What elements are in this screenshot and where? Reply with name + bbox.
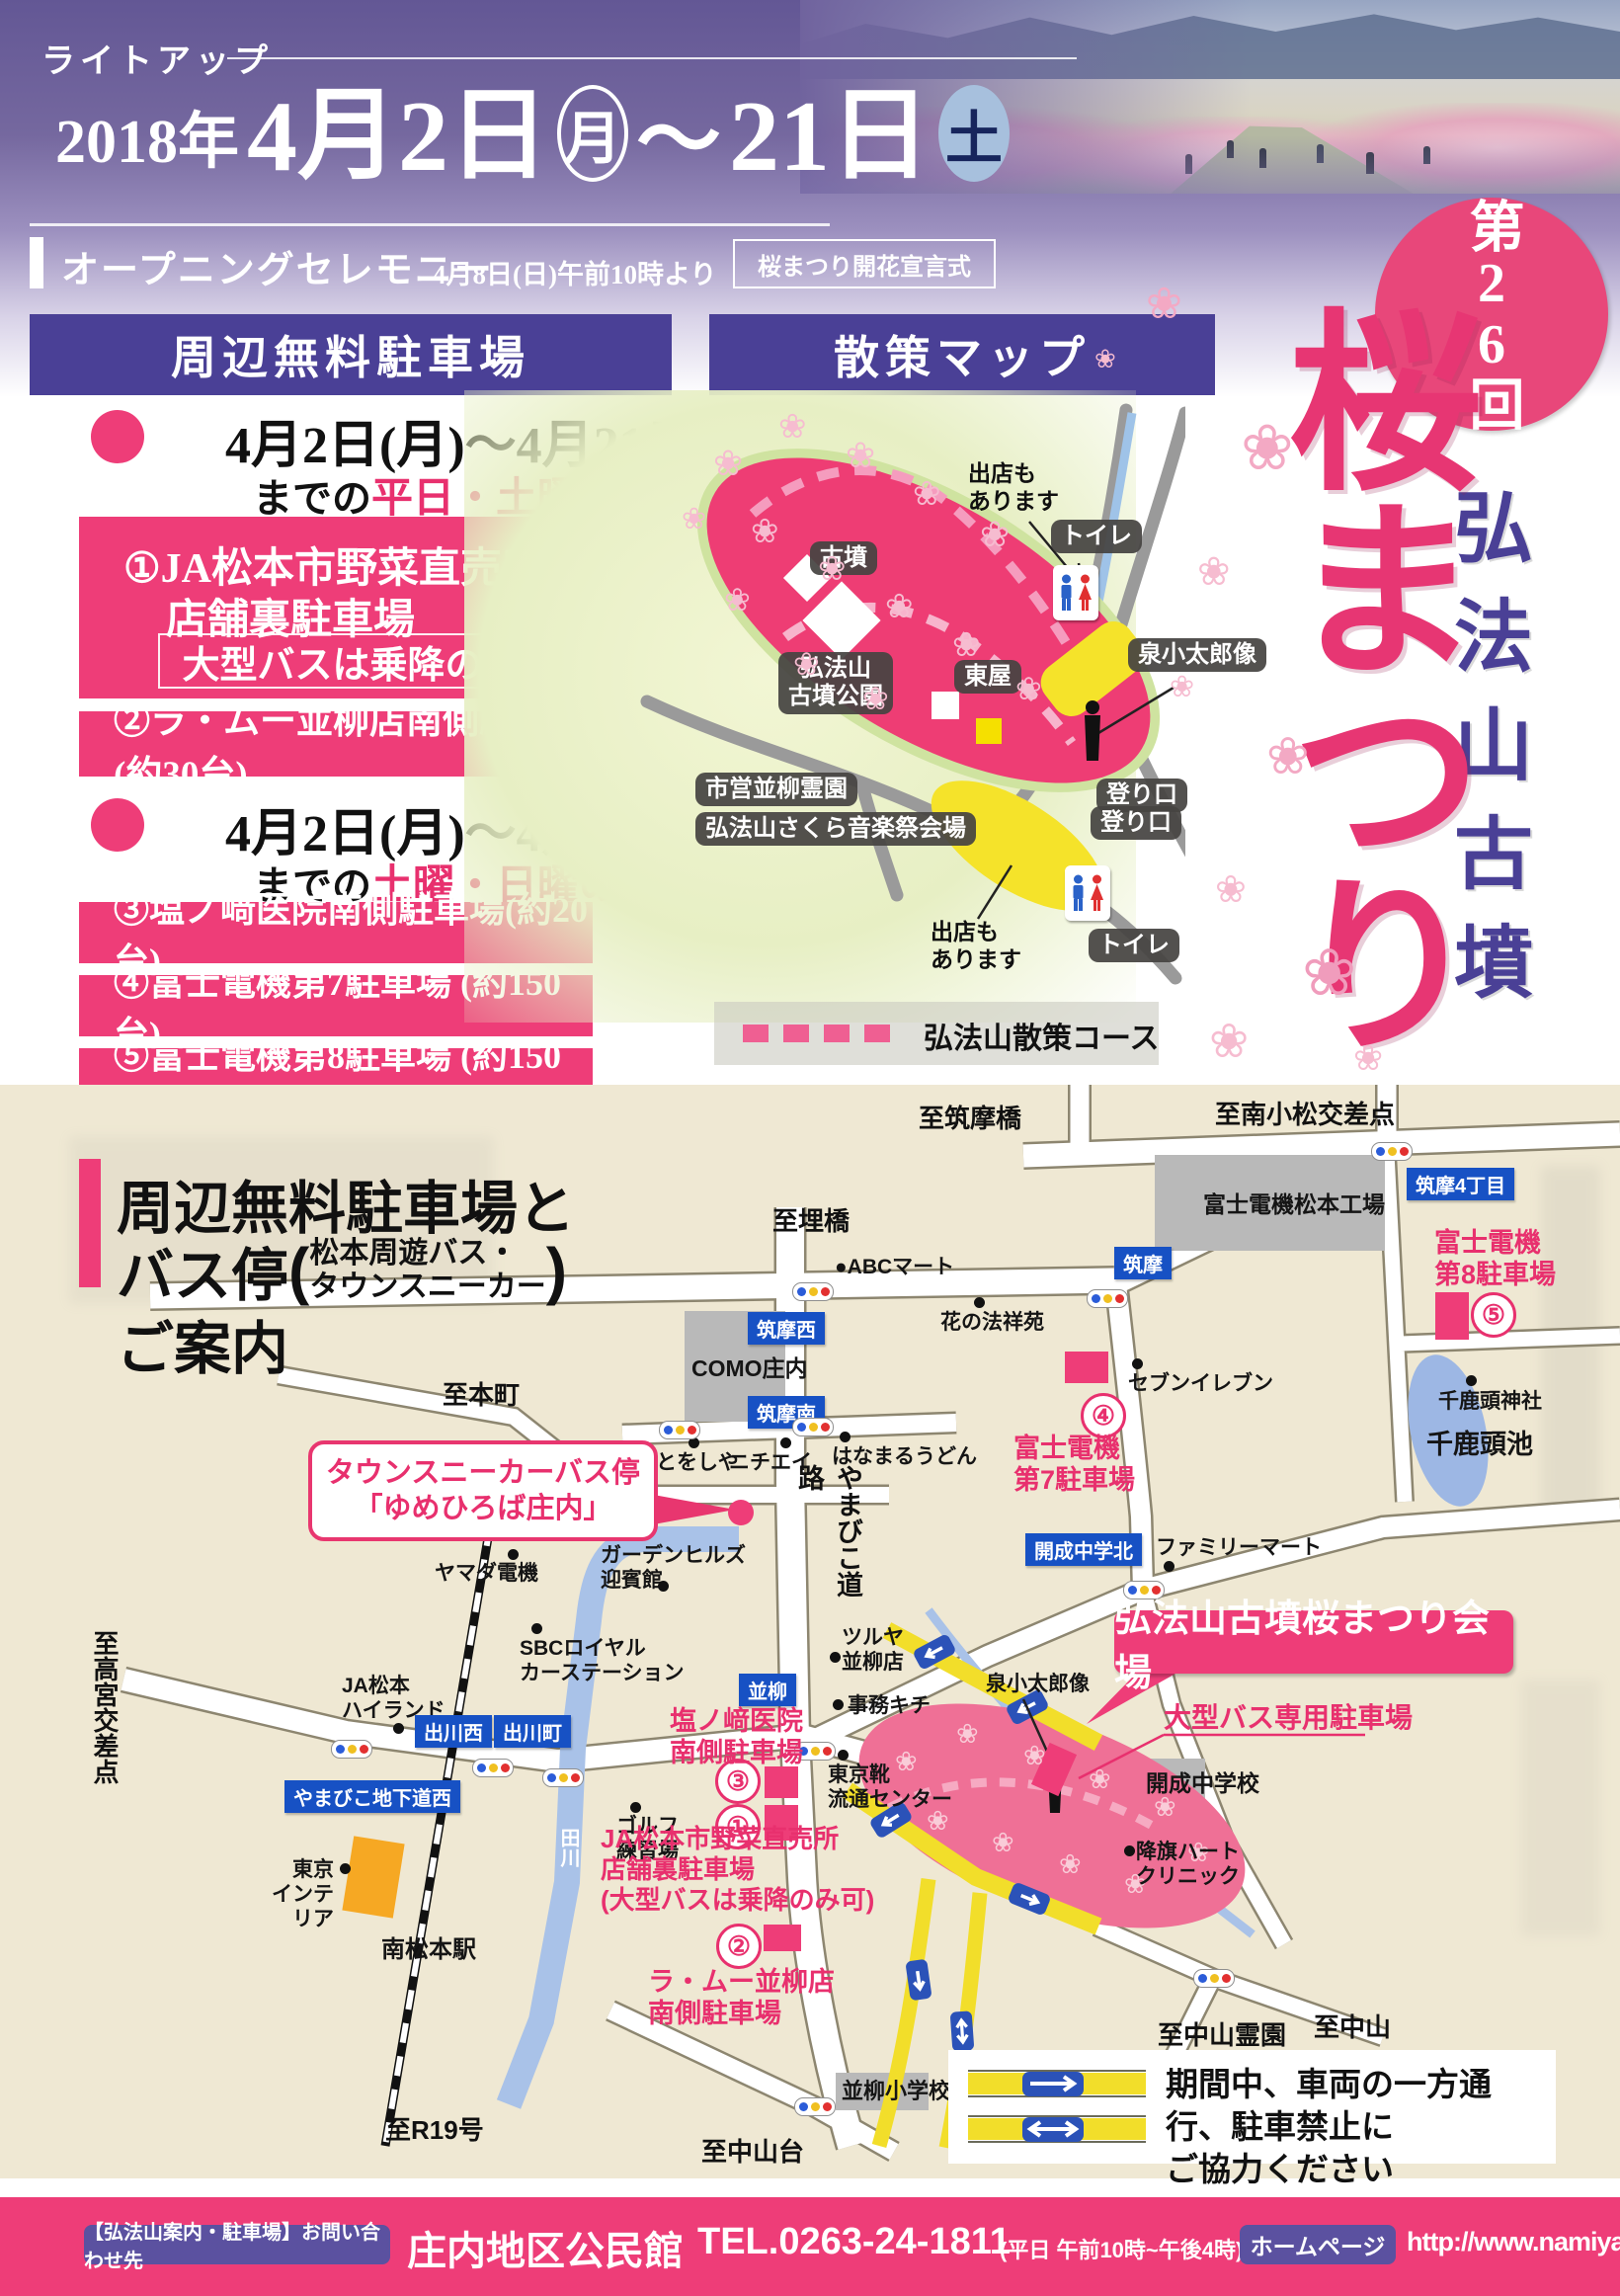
blossom-icon: ❀ [793, 645, 820, 683]
poi-dot [780, 1437, 791, 1448]
traffic-signal [792, 1282, 834, 1301]
dest-r19: 至R19号 [385, 2110, 484, 2147]
poi-tsuruya: ツルヤ 並柳店 [842, 1625, 904, 1675]
callout-line-2: 「ゆめひろば庄内」 [354, 1491, 611, 1526]
blossom-icon: ❀ [1170, 670, 1194, 704]
man-icon [1059, 574, 1074, 612]
sign-namiyanagi: 並柳 [739, 1674, 796, 1706]
decor-line [227, 57, 1077, 59]
flyer: ライトアップ 2018年 4月2日 月 〜 21日 土 オープニングセレモニー … [0, 0, 1620, 2296]
blossom-icon: ❀ [992, 1828, 1014, 1858]
traffic-signal [1371, 1142, 1413, 1161]
blossom-icon: ❀ [778, 407, 807, 447]
blossom-icon: ❀ [1209, 1014, 1249, 1069]
poi-fuji-electric-plant: 富士電機松本工場 [1203, 1191, 1385, 1219]
poi-dot [531, 1623, 542, 1634]
blossom-icon: ❀ [1266, 727, 1310, 786]
footer-hours: (平日 午前10時~午後4時) [1000, 2233, 1243, 2264]
poi-dot [508, 1549, 519, 1560]
blossom-icon: ❀ [1146, 279, 1182, 329]
prefix: までの [253, 466, 371, 524]
dest-nakayama: 至中山 [1314, 2008, 1391, 2044]
heading-accent-bar [79, 1159, 101, 1287]
poi-hananohoshoen: 花の法祥苑 [940, 1310, 1044, 1335]
date-from: 4月2日 [247, 87, 549, 188]
footer-org: 庄内地区公民館 [407, 2219, 684, 2276]
parking-num-2: ② [716, 1924, 762, 1969]
blossom-icon: ❀ [1215, 867, 1247, 912]
woman-icon [1089, 874, 1105, 912]
blossom-icon: ❀ [713, 443, 743, 484]
sign-chikuma: 筑摩 [1114, 1247, 1172, 1279]
poi-garden-hills: ガーデンヒルズ 迎賓館 [601, 1543, 746, 1593]
walkmap-label-azumaya: 東屋 [954, 660, 1021, 694]
event-dates: 2018年 4月2日 月 〜 21日 土 [55, 85, 1010, 188]
blossom-icon: ❀ [724, 581, 751, 618]
section-bar-parking: 周辺無料駐車場 [30, 314, 672, 395]
poi-izumi-kotaro-statue: 泉小太郎像 [986, 1672, 1090, 1696]
dow-to-badge: 土 [938, 85, 1010, 182]
blossom-icon: ❀ [1023, 1741, 1046, 1771]
walkmap-label-trailhead-2: 登り口 [1091, 806, 1181, 840]
traffic-signal [794, 2097, 836, 2116]
parking-text-4: 富士電機 第7駐車場 [1013, 1433, 1135, 1497]
walkmap-note-stalls-1: 出店も あります [968, 460, 1059, 515]
parking-num-5: ⑤ [1471, 1292, 1516, 1338]
dest-takamiya: 至高宮交差点 [87, 1630, 123, 1887]
poi-dot [974, 1297, 985, 1308]
traffic-signal [659, 1421, 700, 1439]
oneway-legend-icons [968, 2068, 1146, 2147]
ceremony-box: 桜まつり開花宣言式 [733, 239, 996, 288]
blossom-icon: ❀ [1353, 1037, 1383, 1079]
sign-degawa-nishi: 出川西 [415, 1715, 492, 1748]
poi-jimukichi: 事務キチ [848, 1693, 931, 1718]
poi-dot [830, 1652, 841, 1663]
poi-dot [340, 1863, 351, 1874]
poi-chikatou-shrine: 千鹿頭神社 [1438, 1389, 1542, 1414]
sign-kaisei-kita: 開成中学北 [1025, 1533, 1142, 1566]
ceremony-label: オープニングセレモニー [61, 239, 494, 293]
poi-seven-eleven: セブンイレブン [1128, 1371, 1273, 1396]
heading-paren-2: タウンスニーカー [309, 1271, 545, 1305]
parking-text-3: 塩ノ﨑医院 南側駐車場 [670, 1705, 803, 1769]
poi-namiyanagi-elementary: 並柳小学校 [842, 2079, 950, 2104]
blossom-icon: ❀ [980, 514, 1010, 555]
roadmap-heading-2: バス停 ( 松本周遊バス・ タウンスニーカー ) [117, 1229, 567, 1312]
poi-dot [630, 1802, 641, 1813]
walkmap-graphic [435, 385, 1185, 1077]
parking-text-1: JA松本市野菜直売所 店舗裏駐車場 (大型バスは乗降のみ可) [601, 1824, 874, 1917]
dow-from-badge: 月 [557, 85, 628, 182]
blossom-icon: ❀ [1197, 549, 1231, 595]
walkmap-label-cemetery: 市営並柳霊園 [695, 773, 857, 806]
blossom-icon: ❀ [885, 587, 914, 626]
bullet-dot [91, 410, 144, 463]
poi-como-shonai: COMO庄内 [691, 1355, 808, 1383]
blossom-icon: ❀ [952, 625, 981, 665]
dest-minamikomatsu: 至南小松交差点 [1215, 1095, 1395, 1131]
woman-icon [1077, 574, 1093, 612]
walkmap-legend-label: 弘法山散策コース [924, 1014, 1160, 1057]
dest-honmachi: 至本町 [443, 1375, 520, 1412]
parking-text-2: ラ・ムー並柳店 南側駐車場 [648, 1966, 835, 2030]
poi-dot [838, 1750, 849, 1761]
parking-rect-3 [765, 1766, 798, 1798]
toilet-icon-1 [1053, 565, 1098, 620]
sign-chikuma-4: 筑摩4丁目 [1407, 1168, 1514, 1200]
poi-kaisei-junior-high: 開成中学校 [1146, 1770, 1259, 1798]
poi-dot [1132, 1358, 1143, 1369]
footer-tel: TEL.0263-24-1811 [697, 2221, 1011, 2263]
ceremony-bar [30, 237, 43, 288]
blossom-icon: ❀ [913, 474, 941, 514]
callout-line-1: タウンスニーカーバス停 [326, 1455, 640, 1491]
poi-dot [840, 1432, 850, 1442]
footer-contact-label: 【弘法山案内・駐車場】お問い合わせ先 [84, 2225, 390, 2264]
railway [385, 1526, 490, 2146]
bullet-dot [91, 798, 144, 852]
blossom-icon: ❀ [682, 502, 706, 536]
blossom-icon: ❀ [1241, 411, 1294, 485]
paren-open: ( [288, 1234, 309, 1307]
oneway-legend-box: 期間中、車両の一方通行、駐車禁止に ご協力ください [948, 2050, 1556, 2164]
blossom-icon: ❀ [846, 435, 875, 476]
date-to: 21日 [729, 87, 931, 188]
walkmap-label-music-fes: 弘法山さくら音楽祭会場 [695, 812, 976, 846]
poi-dot [393, 1723, 404, 1734]
blossom-icon: ❀ [956, 1719, 979, 1750]
poi-dot [658, 1581, 669, 1592]
parking-rect-2 [764, 1925, 801, 1951]
parking-text-5: 富士電機 第8駐車場 [1434, 1227, 1556, 1291]
traffic-signal [792, 1418, 834, 1436]
heading-bus-stop: バス停 [117, 1229, 288, 1312]
poi-dot [833, 1699, 844, 1710]
bus-stop-callout: タウンスニーカーバス停 「ゆめひろば庄内」 [308, 1440, 658, 1541]
blossom-icon: ❀ [751, 512, 779, 551]
poi-minami-matsumoto-sta: 南松本駅 [381, 1936, 476, 1965]
blossom-icon: ❀ [862, 680, 889, 717]
dest-nakayamadai: 至中山台 [701, 2132, 804, 2169]
tagawa-river-label: 田川 [554, 1828, 583, 1887]
sign-degawa-cho: 出川町 [494, 1715, 571, 1748]
bus-stop-dot [728, 1500, 754, 1525]
parking-rect-5 [1435, 1292, 1469, 1340]
year: 2018年 [55, 99, 239, 188]
poi-dot [1124, 1845, 1135, 1856]
poi-dot [1466, 1375, 1477, 1386]
venue-banner: 弘法山古墳桜まつり会場 [1114, 1610, 1513, 1674]
poi-sbc-royal: SBCロイヤル カーステーション [520, 1636, 685, 1685]
heading-paren-1: 松本周遊バス・ [309, 1237, 545, 1271]
poi-dot [1164, 1561, 1174, 1572]
traffic-signal [331, 1740, 372, 1759]
walkmap-note-stalls-2: 出店も あります [931, 919, 1021, 973]
sign-yamabiko-underpass: やまびこ地下道西 [284, 1780, 460, 1813]
blossom-icon: ❀ [1015, 670, 1042, 707]
blossom-icon: ❀ [1089, 1764, 1111, 1795]
dest-nakayama-reien: 至中山霊園 [1158, 2015, 1286, 2052]
roadmap-heading-3: ご案内 [117, 1302, 288, 1385]
blossom-icon: ❀ [818, 549, 847, 589]
section-bar-walkmap: 散策マップ [709, 314, 1215, 395]
poi-towoshiya: とをしや [656, 1450, 739, 1475]
blossom-icon: ❀ [1094, 344, 1116, 374]
ceremony-time: 4月8日(日)午前10時より [433, 253, 716, 291]
walkmap-label-toilet-1: トイレ [1051, 520, 1142, 553]
poi-abc-mart: ●ABCマート [835, 1255, 954, 1279]
tilde: 〜 [636, 94, 721, 188]
traffic-signal [472, 1759, 514, 1777]
poi-tokyo-interior: 東京 インテリア [255, 1857, 334, 1932]
poi-familymart: ファミリーマート [1156, 1535, 1322, 1560]
sign-chikuma-nishi: 筑摩西 [748, 1312, 825, 1345]
footer-url: http://www.namiyanagi.com [1407, 2227, 1620, 2257]
traffic-signal [1193, 1969, 1235, 1988]
paren-close: ) [546, 1234, 567, 1307]
walkmap-label-toilet-2: トイレ [1089, 929, 1179, 962]
decor-line [30, 223, 830, 226]
poi-tokyo-kutsu: 東京靴 流通センター [828, 1763, 952, 1812]
dest-uzuhashi: 至埋橋 [772, 1201, 850, 1238]
footer-hp-label: ホームページ [1240, 2225, 1396, 2264]
toilet-icon-2 [1065, 865, 1110, 921]
traffic-signal [542, 1768, 584, 1787]
man-icon [1071, 874, 1086, 912]
oneway-legend-text: 期間中、車両の一方通行、駐車禁止に ご協力ください [1166, 2064, 1556, 2191]
poi-chikatou-pond: 千鹿頭池 [1426, 1429, 1533, 1460]
parking-rect-4 [1065, 1352, 1108, 1383]
traffic-signal [1087, 1289, 1128, 1308]
bus-parking-label: 大型バス専用駐車場 [1164, 1701, 1413, 1735]
blossom-icon: ❀ [1059, 1849, 1082, 1880]
yamabiko-road-label: やまびこ道路 [790, 1464, 867, 1602]
station-minami-matsumoto [342, 1836, 404, 1918]
poi-furihata-clinic: 降旗ハート クリニック [1136, 1840, 1240, 1889]
dest-chikumabashi: 至筑摩橋 [919, 1099, 1021, 1135]
poi-yamada-denki: ヤマダ電機 [435, 1561, 538, 1586]
blossom-icon: ❀ [1302, 935, 1356, 1011]
statue-icon [1085, 700, 1100, 761]
